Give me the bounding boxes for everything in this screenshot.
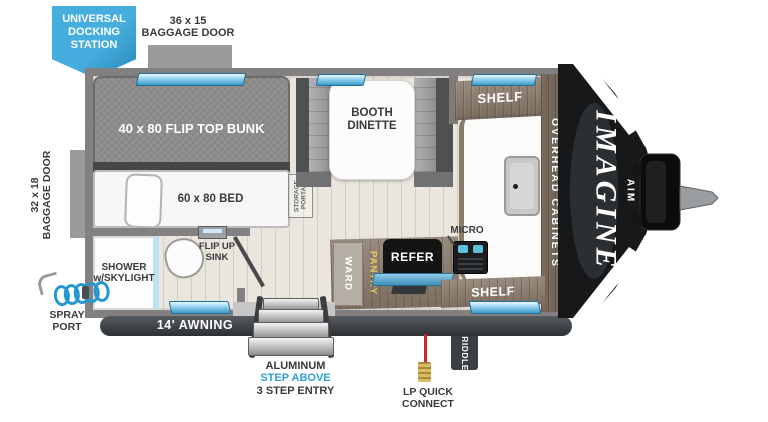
window [136, 73, 247, 86]
steps-line1: ALUMINUM [238, 360, 353, 372]
baggage-door-left-text: BAGGAGE DOOR [42, 145, 54, 245]
bunk-label: 40 x 80 FLIP TOP BUNK [119, 104, 265, 137]
sink-basin-highlight [203, 229, 222, 233]
badge-line3: STATION [52, 39, 136, 52]
dinette-bench-right-base [414, 172, 453, 187]
range-grate [458, 257, 483, 270]
kitchen-sink [504, 156, 540, 216]
dinette-bench-left [309, 78, 331, 172]
shower-line1: SHOWER [93, 262, 154, 273]
wardrobe: WARD [333, 242, 363, 306]
badge-line2: DOCKING [52, 26, 136, 39]
front-cap-and-hitch: IMAGINE AIM [548, 54, 768, 346]
lp-line1: LP QUICK [388, 387, 468, 399]
spray-port-label: SPRAY PORT [36, 310, 98, 334]
flip-top-bunk: 40 x 80 FLIP TOP BUNK [93, 76, 290, 164]
spray-port-line1: SPRAY [36, 310, 98, 322]
brand-model-logo: IMAGINE [590, 109, 623, 271]
window [316, 74, 367, 86]
range-icon [453, 241, 488, 274]
burner-right [473, 245, 483, 253]
dinette-line1: BOOTH [330, 107, 414, 120]
shelf-top-label: SHELF [477, 88, 522, 105]
baggage-door-top-label: 36 x 15 BAGGAGE DOOR [128, 15, 248, 40]
steps-line2: STEP ABOVE [238, 372, 353, 384]
wardrobe-label: WARD [343, 256, 354, 291]
lp-quick-connect-label: LP QUICK CONNECT [388, 387, 468, 411]
dinette-bench-left-back [296, 78, 309, 172]
badge-line1: UNIVERSAL [52, 13, 136, 26]
shelf-bottom-label: SHELF [471, 284, 514, 300]
spray-port-fitting [82, 286, 89, 299]
dinette-label: BOOTH DINETTE [330, 107, 414, 133]
awning-bar: 14' AWNING [100, 316, 572, 336]
burner-left [458, 245, 468, 253]
entry-steps-label: ALUMINUM STEP ABOVE 3 STEP ENTRY [238, 360, 353, 397]
hitch-coupler-icon [680, 186, 718, 210]
window [471, 74, 538, 86]
refrigerator: REFER [383, 239, 442, 275]
dinette-bench-right [414, 78, 436, 172]
refrigerator-base [391, 286, 427, 294]
baggage-door-top-text: BAGGAGE DOOR [128, 27, 248, 39]
flip-up-sink-icon [198, 226, 227, 239]
faucet-icon [513, 184, 518, 189]
brand-series-logo: AIM [625, 179, 636, 203]
refrigerator-label: REFER [391, 250, 434, 264]
step-tread-4 [248, 337, 334, 356]
dinette-line2: DINETTE [330, 120, 414, 133]
baggage-door-top-size: 36 x 15 [128, 15, 248, 27]
propane-cover-highlight [646, 161, 666, 223]
pillow-icon [124, 173, 163, 228]
rv-floorplan: UNIVERSAL DOCKING STATION 36 x 15 BAGGAG… [0, 0, 768, 422]
hitch-tab [634, 214, 642, 227]
dinette-bench-left-base [296, 172, 331, 187]
bed: 60 x 80 BED [93, 170, 290, 228]
window [169, 301, 232, 314]
dinette-table: BOOTH DINETTE [329, 80, 415, 180]
window [469, 301, 542, 314]
lp-line2: CONNECT [388, 399, 468, 411]
steps-line3: 3 STEP ENTRY [238, 385, 353, 397]
spray-port-line2: PORT [36, 322, 98, 334]
baggage-door-left-size: 32 x 18 [30, 145, 42, 245]
lp-connector-icon [418, 362, 431, 382]
hitch-tab [634, 163, 642, 176]
lp-line [424, 334, 427, 364]
flip-up-sink-line2: SINK [188, 253, 246, 264]
baggage-door-left-label: 32 x 18 BAGGAGE DOOR [30, 145, 74, 245]
